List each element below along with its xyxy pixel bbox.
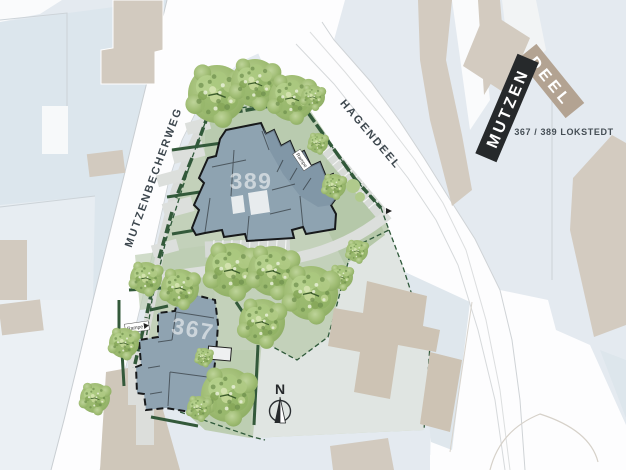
svg-text:N: N	[275, 381, 285, 397]
svg-text:367 / 389 LOKSTEDT: 367 / 389 LOKSTEDT	[514, 127, 613, 137]
svg-text:389: 389	[230, 168, 273, 194]
